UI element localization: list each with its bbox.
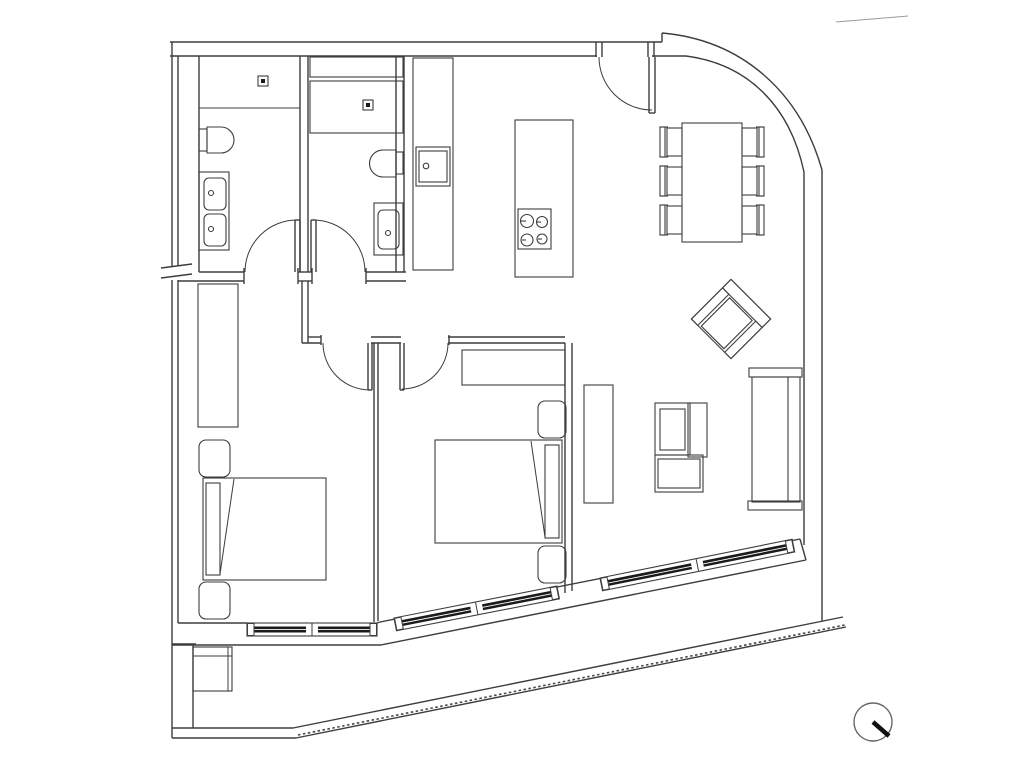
nightstand xyxy=(538,546,566,583)
compass-needle xyxy=(873,722,889,736)
door-swing-arc xyxy=(323,343,370,390)
sideboard xyxy=(584,385,613,503)
window-bedroom1-post xyxy=(248,624,255,636)
dining-chair xyxy=(660,127,682,157)
chair-seat xyxy=(742,206,757,234)
chair-back xyxy=(660,205,665,235)
dining-table xyxy=(682,123,742,242)
balcony-railing xyxy=(298,625,845,735)
bed-headboard xyxy=(206,483,220,575)
media-unit-inner xyxy=(660,409,685,450)
nightstand xyxy=(199,440,230,477)
faucet-dot xyxy=(209,227,214,232)
wall-break-tick xyxy=(161,274,192,278)
door-swing-arc xyxy=(313,220,365,272)
chair-seat xyxy=(667,128,682,156)
sofa-arm xyxy=(749,368,802,377)
planter-box xyxy=(193,647,232,691)
dining-chair xyxy=(660,205,682,235)
sink-basin xyxy=(204,178,226,210)
window-bedroom1-post xyxy=(370,624,377,636)
kitchen-sink-outer xyxy=(416,147,450,186)
dresser xyxy=(462,350,565,385)
media-unit-side xyxy=(688,403,707,457)
bathroom2-door xyxy=(311,220,365,272)
compass xyxy=(854,703,892,741)
chair-seat xyxy=(742,128,757,156)
bed-headboard xyxy=(545,445,559,538)
balcony-outer-edge xyxy=(296,627,846,738)
kitchen-island xyxy=(515,120,573,277)
armchair-seat xyxy=(701,298,752,349)
shower-tray xyxy=(310,81,403,133)
toilet-bowl xyxy=(207,127,234,153)
kitchen xyxy=(413,58,573,277)
nightstand xyxy=(199,582,230,619)
armchair-arm xyxy=(725,321,762,358)
faucet-dot xyxy=(209,191,214,196)
bedroom1-door xyxy=(323,343,372,390)
media-unit-lower xyxy=(655,455,703,492)
chair-back xyxy=(660,166,665,196)
curved-wall-outer xyxy=(662,33,822,621)
interior-walls xyxy=(178,56,572,622)
toilet-bowl xyxy=(370,150,397,177)
nightstand xyxy=(538,401,566,438)
shelf-niche xyxy=(310,57,403,77)
wall-break-tick xyxy=(161,264,192,268)
window-bedroom1 xyxy=(247,623,377,636)
slanted-wall-outer xyxy=(381,560,806,645)
armchair-arm xyxy=(691,288,728,325)
faucet-dot xyxy=(423,163,429,169)
toilet-tank xyxy=(396,152,403,174)
entry-door xyxy=(599,57,655,113)
chair-seat xyxy=(667,167,682,195)
shower-drain-dot xyxy=(366,103,370,107)
windows xyxy=(247,539,795,636)
dining-chair xyxy=(742,166,764,196)
dining-chair xyxy=(742,205,764,235)
dining-chair xyxy=(742,127,764,157)
door-swing-arc xyxy=(402,343,448,389)
bedroom2-furniture xyxy=(435,350,566,583)
door-swing-arc xyxy=(245,220,297,272)
armchair-back xyxy=(723,279,771,327)
neighbor-context-line xyxy=(836,16,908,22)
floor-plan-page xyxy=(0,0,1024,768)
cooktop xyxy=(518,209,551,249)
shower-drain-dot xyxy=(261,79,265,83)
entry-door-swing-arc xyxy=(599,57,652,110)
dining-set xyxy=(660,123,764,242)
bathroom2-fixtures xyxy=(310,57,403,255)
window-bedroom2 xyxy=(394,586,559,631)
slanted-wall-cap xyxy=(800,539,806,560)
sofa-body xyxy=(752,377,800,502)
bedroom1-furniture xyxy=(198,284,326,619)
chair-back xyxy=(759,205,764,235)
armchair xyxy=(691,279,770,358)
media-unit-lower-inner xyxy=(658,459,700,488)
wardrobe xyxy=(198,284,238,427)
bedroom2-door xyxy=(400,343,448,390)
curved-wall-inner xyxy=(686,56,804,545)
bed-fold-line xyxy=(220,479,234,574)
bathroom1-fixtures xyxy=(199,76,300,250)
chair-back xyxy=(660,127,665,157)
faucet-dot xyxy=(386,231,391,236)
chair-back xyxy=(759,127,764,157)
chair-seat xyxy=(667,206,682,234)
living-room-furniture xyxy=(584,279,802,510)
chair-seat xyxy=(742,167,757,195)
dining-chair xyxy=(660,166,682,196)
chair-back xyxy=(759,166,764,196)
bathroom1-door xyxy=(245,220,300,272)
armchair-frame xyxy=(691,279,770,358)
bed xyxy=(435,440,562,543)
sink-basin xyxy=(204,214,226,246)
bed-fold-line xyxy=(531,441,545,537)
floor-plan-svg xyxy=(0,0,1024,768)
toilet-tank xyxy=(199,129,207,151)
window-living xyxy=(600,539,795,590)
